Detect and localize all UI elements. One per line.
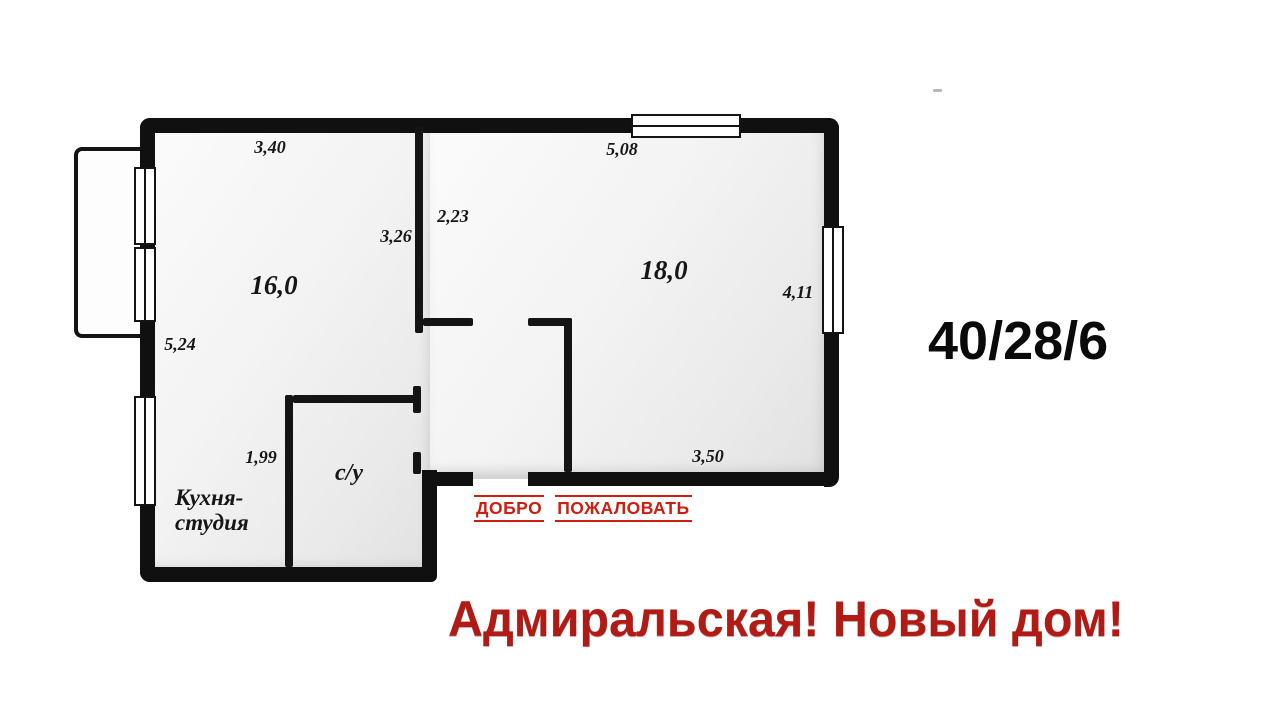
dimension-top-right-wall: 5,08 <box>572 139 672 160</box>
window-left-lower-icon <box>134 396 156 506</box>
interior-wall-bathroom-left <box>285 395 293 567</box>
dimension-corridor-width: 2,23 <box>403 206 503 227</box>
welcome-word-1: ДОБРО <box>474 495 544 522</box>
dimension-corridor-wall: 3,26 <box>346 226 446 247</box>
dimension-bottom-wall: 3,50 <box>658 446 758 467</box>
dimension-top-left-wall: 3,40 <box>220 137 320 158</box>
dimension-right-wall: 4,11 <box>748 282 848 303</box>
dimension-bathroom-width: 1,99 <box>211 447 311 468</box>
poster-canvas: 3,40 5,08 2,23 3,26 4,11 5,24 1,99 3,50 … <box>0 0 1280 720</box>
window-left-upper-icon <box>134 167 156 245</box>
room-label-kitchen-line1: Кухня- <box>175 485 249 510</box>
apartment-spec-number: 40/28/6 <box>928 310 1188 372</box>
interior-wall-bathroom-door-cap <box>413 386 421 413</box>
window-left-middle-icon <box>134 247 156 322</box>
window-right-icon <box>822 226 844 334</box>
room-label-kitchen-studio: Кухня- студия <box>175 485 249 535</box>
small-dash-mark <box>933 89 942 92</box>
welcome-stamp: ДОБРО ПОЖАЛОВАТЬ <box>474 495 692 522</box>
dimension-left-wall: 5,24 <box>130 334 230 355</box>
interior-wall-bathroom-top <box>293 395 415 403</box>
window-divider <box>144 249 146 320</box>
tagline-text: Адмиральская! Новый дом! <box>448 590 1234 648</box>
window-top-icon <box>631 114 741 138</box>
wall-bottom-left <box>140 567 437 582</box>
wall-bottom-right-left-of-entrance <box>422 472 473 486</box>
window-divider <box>144 398 146 504</box>
room-area-living: 16,0 <box>214 270 334 301</box>
room-label-kitchen-line2: студия <box>175 510 249 535</box>
interior-wall-bathroom-door-jamb <box>413 452 421 474</box>
interior-wall-corridor-stub <box>423 318 473 326</box>
wall-bottom-right-right-of-entrance <box>528 472 839 486</box>
window-divider <box>633 125 739 127</box>
room-label-bathroom: с/у <box>299 460 399 487</box>
welcome-word-2: ПОЖАЛОВАТЬ <box>555 495 691 522</box>
room-area-bedroom: 18,0 <box>604 255 724 286</box>
window-divider <box>144 169 146 243</box>
wall-step-vertical <box>422 470 437 582</box>
interior-wall-bedroom-vertical <box>564 318 572 472</box>
window-divider <box>832 228 834 332</box>
